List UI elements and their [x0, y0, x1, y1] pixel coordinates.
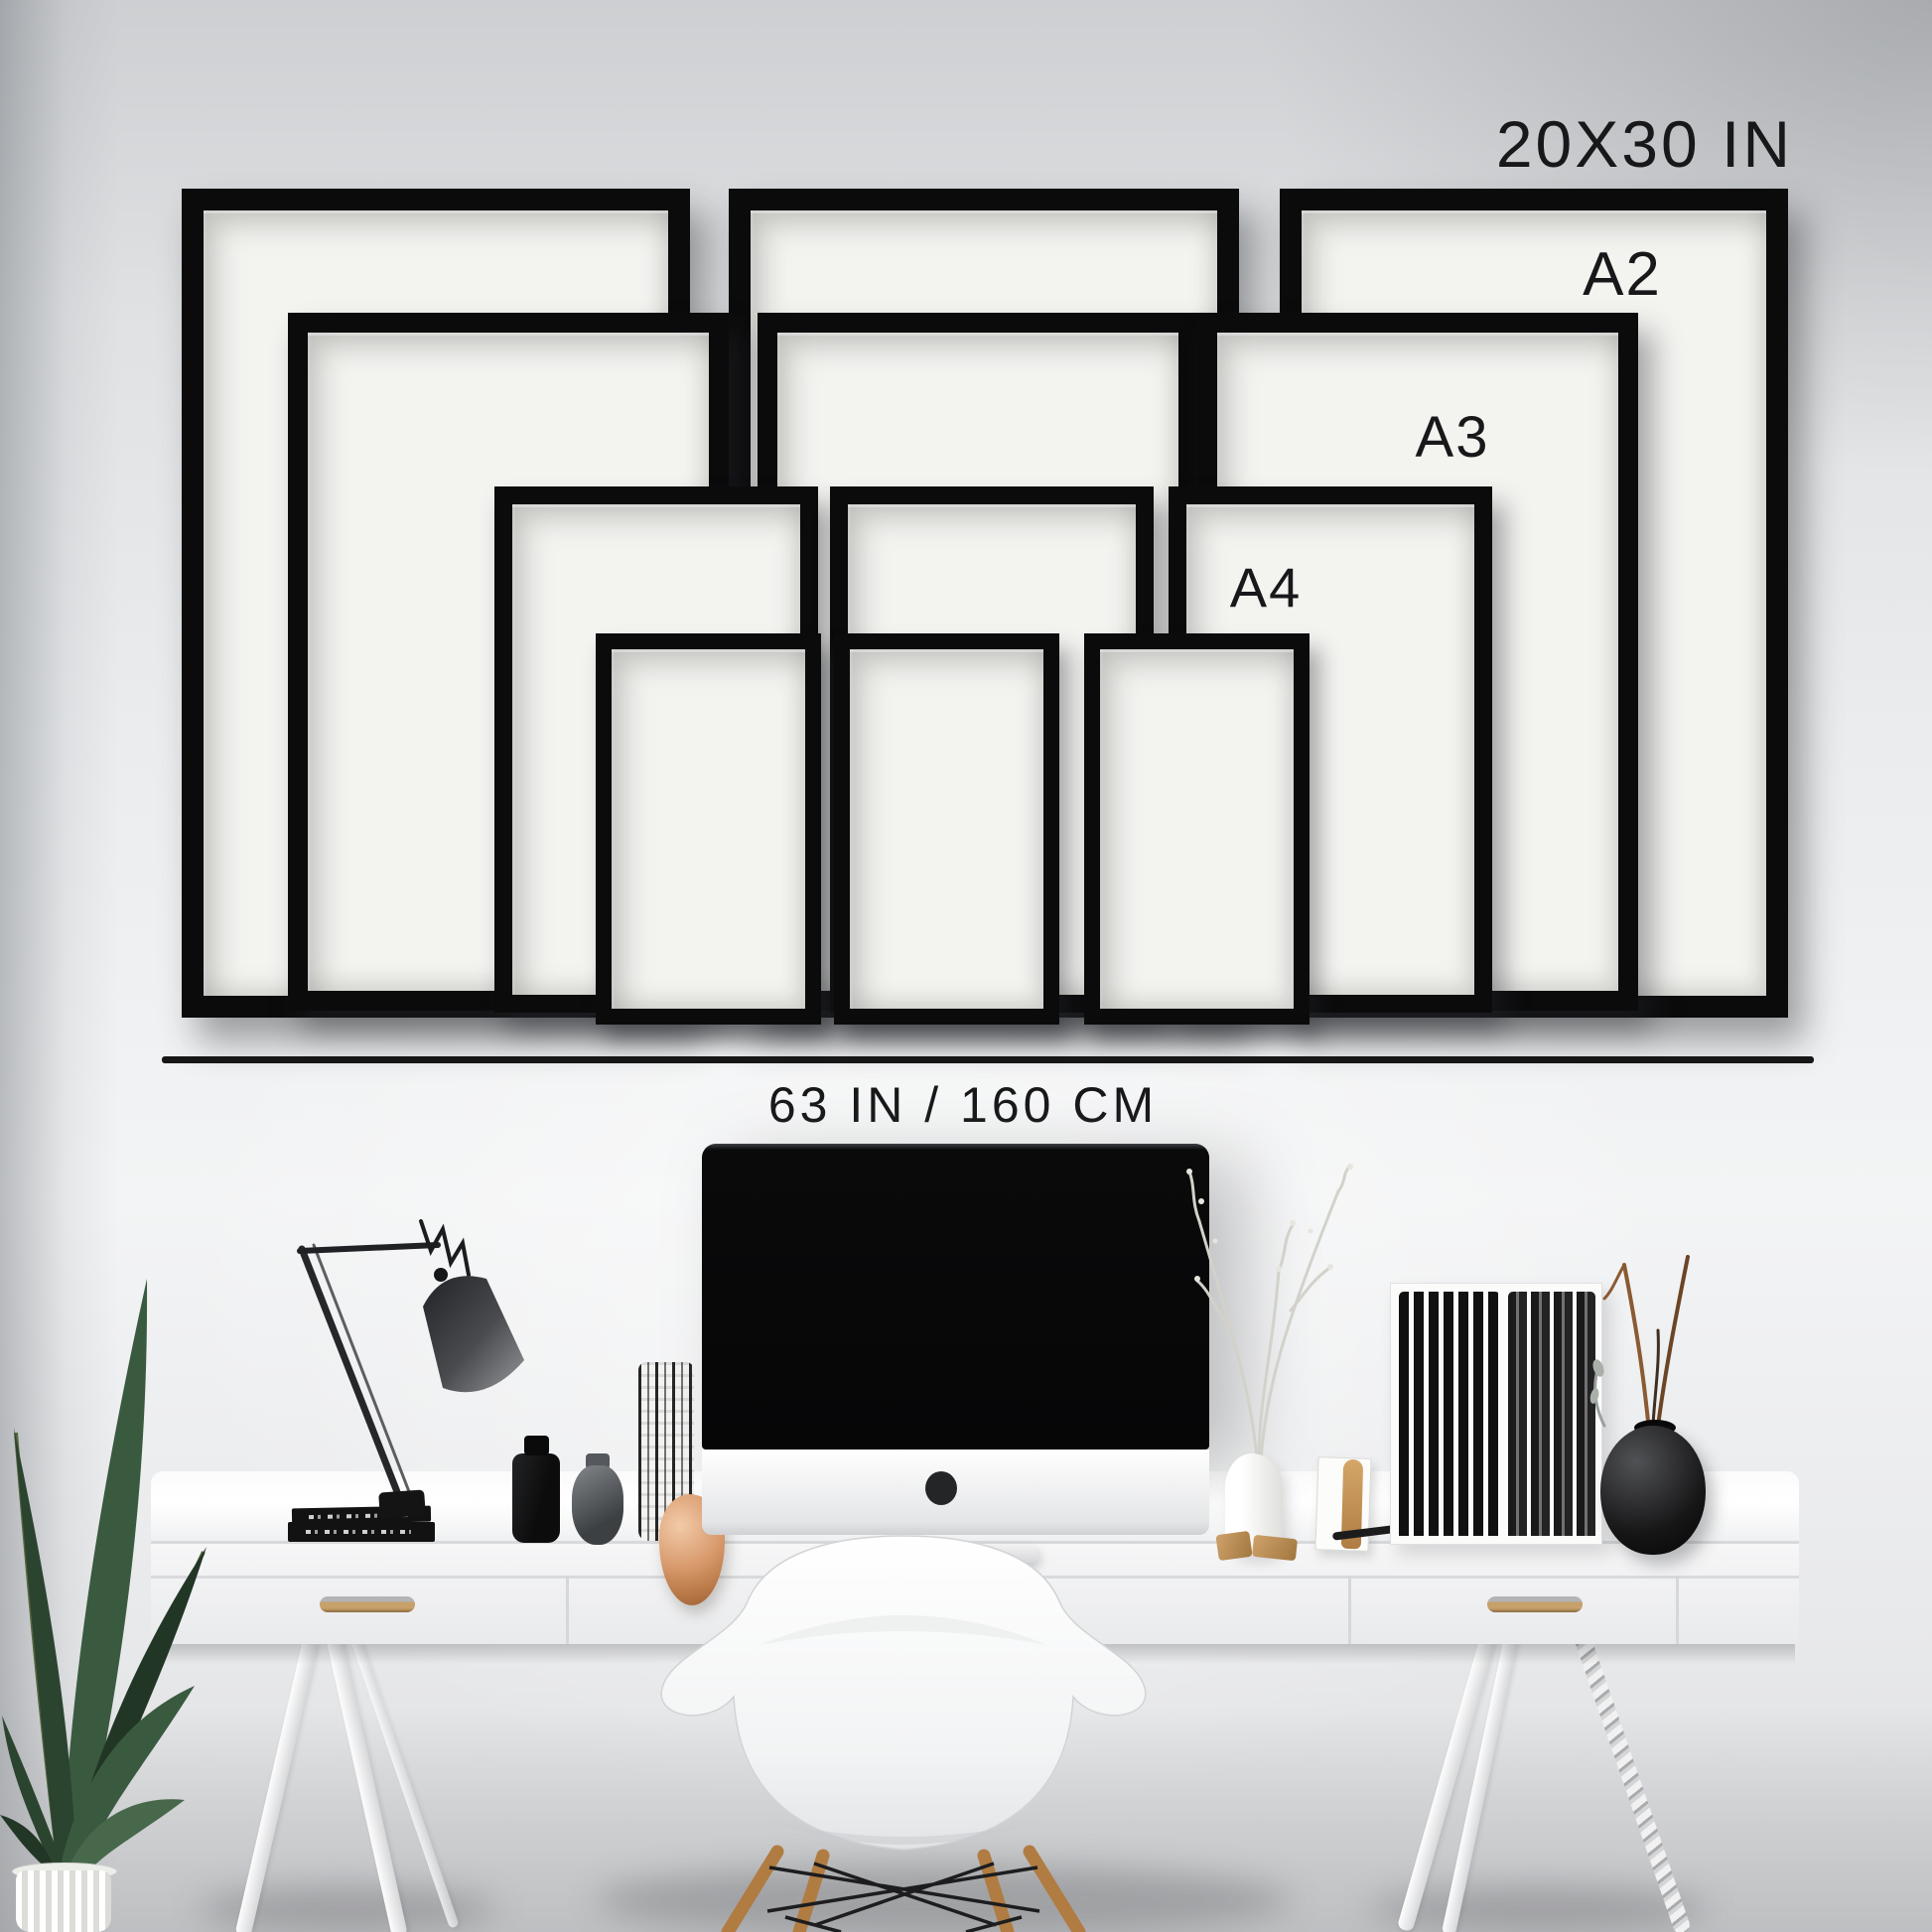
architect-lamp-icon [274, 1209, 542, 1547]
dried-branches-icon [1172, 1162, 1380, 1469]
white-shell-chair [611, 1524, 1196, 1932]
black-slat-organizer [1390, 1283, 1602, 1545]
size-guide-mockup: { "size_guide": { "labels": { "largest":… [0, 0, 1932, 1932]
black-slats [1399, 1292, 1500, 1536]
drawer-seam [1348, 1576, 1351, 1644]
black-bottle [512, 1453, 560, 1543]
label-size-20x30: 20X30 IN [1390, 111, 1793, 177]
gray-slats [1508, 1292, 1595, 1536]
wood-scrap [1215, 1531, 1252, 1561]
plant-pot [16, 1870, 111, 1932]
drawer-handle-left [320, 1596, 415, 1612]
frame-a4-left [596, 633, 821, 1025]
label-size-a2: A2 [1563, 244, 1682, 306]
label-size-a4: A4 [1206, 560, 1325, 616]
frame-a4-right [1084, 633, 1310, 1025]
apple-logo-icon [925, 1471, 957, 1505]
imac-screen [702, 1144, 1209, 1449]
chair-wood-legs [728, 1852, 1079, 1932]
potted-plant [0, 1219, 238, 1932]
label-size-a3: A3 [1393, 409, 1512, 467]
drawer-seam [566, 1576, 569, 1644]
width-indicator-line [162, 1056, 1814, 1063]
wood-scrap [1252, 1535, 1298, 1561]
drawer-handle-right [1487, 1596, 1583, 1612]
label-wall-width: 63 IN / 160 CM [606, 1080, 1320, 1130]
drawer-seam [1676, 1576, 1679, 1644]
frame-a4-middle [834, 633, 1059, 1025]
bottle-cap [524, 1436, 549, 1455]
round-black-vase [1600, 1426, 1706, 1555]
chair-shell [661, 1536, 1146, 1850]
